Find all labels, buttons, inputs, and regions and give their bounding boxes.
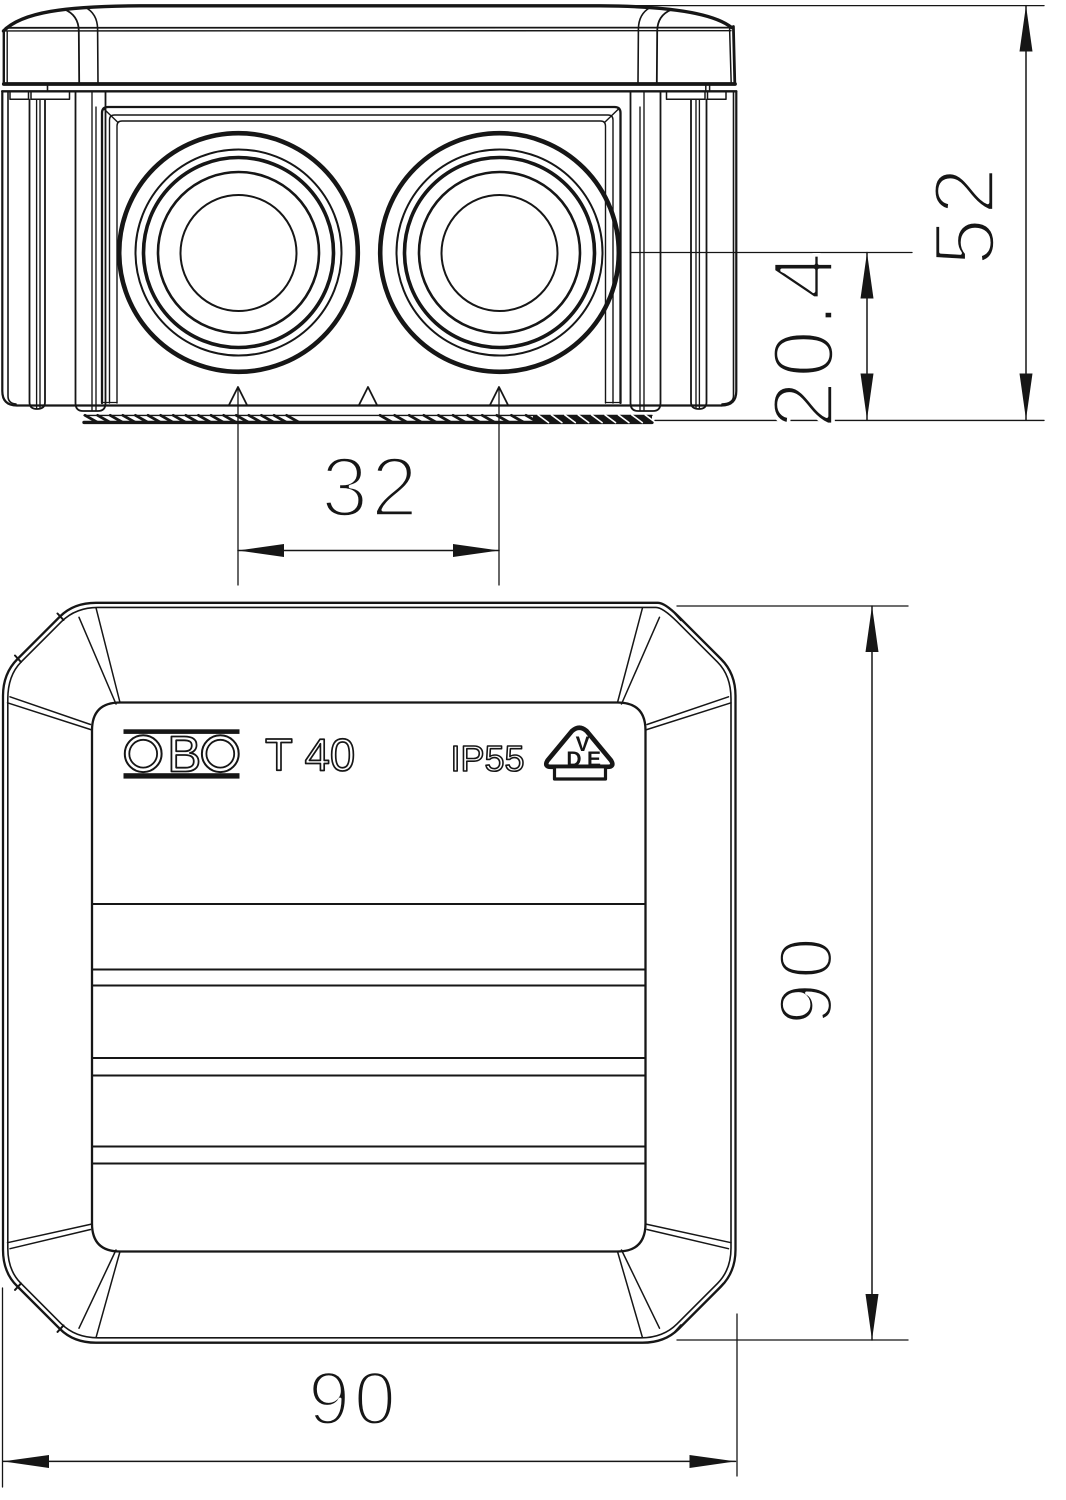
svg-text:IP55: IP55 [451,738,525,779]
svg-text:90: 90 [764,933,848,1024]
svg-text:52: 52 [917,164,1013,266]
svg-text:E: E [587,748,601,771]
svg-text:B: B [167,726,201,783]
svg-text:T 40: T 40 [265,730,355,781]
svg-text:90: 90 [308,1357,399,1441]
svg-text:D: D [566,748,581,771]
svg-text:32: 32 [321,440,420,534]
svg-text:20.4: 20.4 [756,249,852,428]
